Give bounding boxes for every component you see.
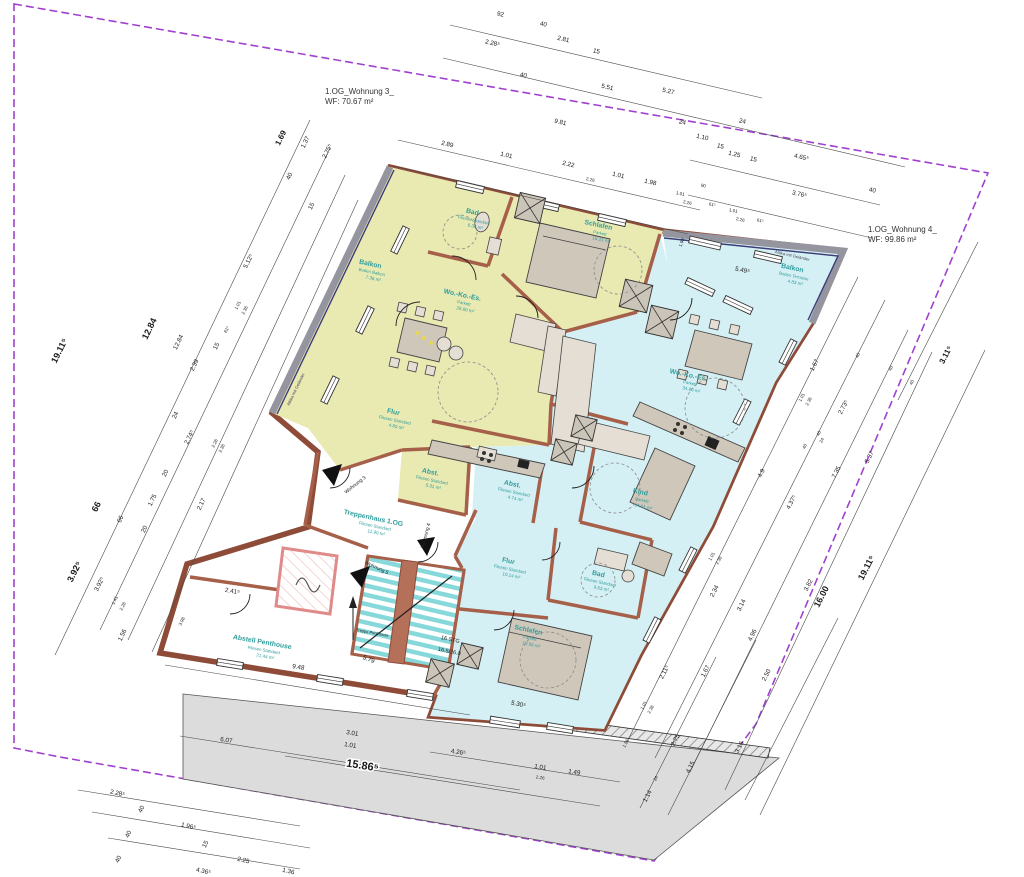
dimension-label: 4.37⁵	[785, 494, 798, 511]
dimension-label: 40	[868, 186, 877, 195]
dimension-label: 92	[496, 10, 505, 19]
dimension-label: 24	[818, 437, 825, 444]
dimension-label: 3.14	[736, 598, 748, 613]
dimension-label: 2.73⁵	[837, 399, 850, 416]
dimension-label: 2.26	[118, 601, 127, 612]
dimension-label: 1.25	[728, 150, 742, 160]
dimension-label: 3.76⁵	[791, 189, 807, 199]
dimension-label: 1.75	[147, 493, 159, 508]
elevator	[276, 548, 337, 614]
dimension-label: 1.41	[110, 595, 119, 606]
dimension-label: 2.17	[196, 497, 208, 512]
dimension-label: 3.11⁵	[937, 344, 954, 365]
dimension-label: 4.96	[747, 628, 759, 643]
dimension-label: 40	[854, 352, 861, 359]
dimension-label: 15	[307, 201, 317, 211]
dimension-label: 61⁵	[756, 217, 764, 223]
dimension-label: 1.96⁵	[180, 821, 196, 831]
dimension-label: 2.36	[804, 396, 813, 407]
dimension-label: 2.26	[586, 176, 596, 183]
dimension-label: 24	[738, 117, 747, 126]
dimension-label: 16.00	[812, 584, 831, 609]
dimension-label: 66	[90, 500, 103, 513]
dimension-label: 2.28⁵	[109, 788, 125, 798]
dimension-label: 19.11⁵	[856, 554, 877, 582]
dimension-label: 2.22	[562, 160, 576, 170]
dimension-label: 12.84	[140, 316, 159, 341]
dimension-label: 61⁵	[223, 325, 231, 333]
dimension-label: 1.01	[500, 151, 514, 161]
dimension-label: 1.01	[612, 171, 626, 181]
dimension-label: 15	[212, 341, 222, 351]
dimension-label: 2.28⁵	[484, 38, 500, 48]
dimension-label: 5.12⁵	[242, 253, 255, 270]
dimension-label: 2.39	[189, 358, 201, 373]
dimension-label: 24	[678, 118, 687, 127]
dimension-label: 40	[887, 365, 894, 372]
dimension-label: 1.69	[273, 128, 288, 146]
dimension-label: 1.56	[117, 628, 129, 643]
dimension-label: 15	[201, 839, 211, 849]
dimension-label: 40	[114, 854, 124, 864]
dimension-label: 4.9	[757, 467, 767, 478]
dimension-label: 2.75⁵	[321, 143, 334, 160]
dimension-label: 2.89	[441, 140, 455, 150]
dimension-label: 9.81	[554, 118, 568, 128]
dimension-label: 2.34	[709, 584, 721, 599]
dimension-label: 2.36	[646, 704, 655, 715]
dimension-label: 3.92⁵	[93, 576, 106, 593]
dimension-label: 1.01	[707, 551, 716, 562]
dimension-label: 40	[815, 430, 822, 437]
dimension-label: 2.11⁵	[658, 664, 671, 680]
dimension-label: 5.27	[662, 87, 676, 97]
apartment4-area: WF: 99.86 m²	[868, 235, 917, 244]
dimension-label: 2.25	[237, 856, 251, 866]
dimension-label: 5.37	[864, 450, 876, 465]
dimension-label: 1.10	[696, 133, 710, 143]
dimension-label: 90	[700, 183, 706, 189]
floor-plan-drawing: 1.OG_Wohnung 3_ WF: 70.67 m² 1.OG_Wohnun…	[0, 0, 1024, 877]
dimension-label: 40	[539, 20, 548, 29]
dimension-label: 3.92⁵	[65, 560, 84, 584]
dimension-label: 66	[116, 514, 126, 524]
apartment4-title: 1.OG_Wohnung 4_	[868, 225, 937, 234]
dimension-label: 7.35	[831, 465, 843, 480]
dimension-label: 1.01	[676, 190, 686, 197]
dimension-label: 2.74⁵	[183, 429, 196, 446]
dimension-label: 1.67	[809, 358, 821, 373]
dimension-label: 40	[519, 71, 528, 80]
dimension-label: 1.98	[644, 178, 658, 188]
dimension-label: 2.81	[557, 35, 571, 45]
apartment3-area: WF: 70.67 m²	[325, 97, 374, 106]
dimension-label: 12.84	[172, 333, 185, 351]
apartment3-title: 1.OG_Wohnung 3_	[325, 87, 394, 96]
dimension-label: 2.36	[217, 443, 226, 454]
dimension-label: 2.26	[736, 216, 746, 223]
dimension-label: 1.36	[282, 867, 296, 877]
dimension-label: 2.26	[683, 199, 693, 206]
dimension-label: 15	[592, 47, 601, 56]
dimension-label: 1.01	[797, 392, 806, 403]
dimension-label: 15	[749, 155, 758, 164]
dimension-label: 2.36	[240, 305, 249, 316]
dimension-label: 40	[908, 379, 915, 386]
dimension-label: 40	[124, 829, 134, 839]
dimension-label: 1.01	[233, 300, 242, 311]
dimension-label: 24	[171, 410, 181, 420]
dimension-label: 4.36⁵	[195, 866, 211, 876]
dimension-label: 5.51	[601, 83, 615, 93]
dimension-label: 40	[285, 171, 295, 181]
dimension-label: 40	[137, 804, 147, 814]
floor-plan-svg: 1.OG_Wohnung 3_ WF: 70.67 m² 1.OG_Wohnun…	[0, 0, 1024, 877]
dimension-label: 2.50	[761, 668, 773, 683]
dimension-label: 19.11⁵	[49, 337, 70, 365]
dimension-label: 61⁵	[708, 201, 716, 207]
dimension-label: 1.01	[639, 700, 648, 711]
dimension-label: 1.01	[729, 207, 739, 214]
dimension-label: 4.65⁵	[793, 152, 809, 162]
dimension-label: 40	[801, 443, 808, 450]
dimension-label: 2.36	[714, 555, 723, 566]
dimension-label: 1.67	[700, 664, 712, 679]
dimension-label: 15	[716, 142, 725, 151]
dimension-label: 20	[161, 468, 171, 478]
dimension-label: 2.26	[210, 438, 219, 449]
dimension-label: 20	[140, 524, 150, 534]
